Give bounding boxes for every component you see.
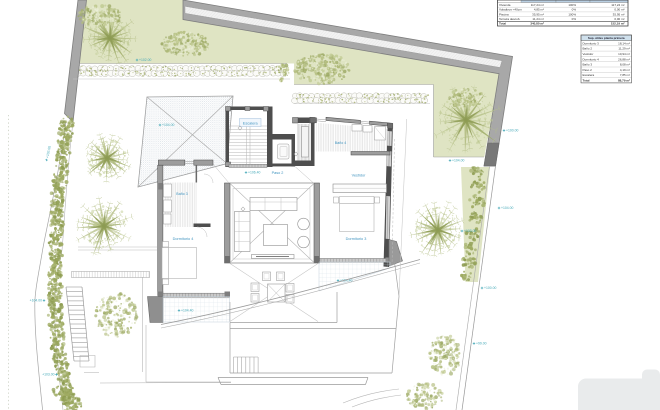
svg-text:Total: Total	[583, 79, 590, 83]
svg-text:Terraza descub.: Terraza descub.	[499, 17, 521, 21]
svg-text:Baño 2: Baño 2	[583, 47, 593, 51]
svg-text:+100.00: +100.00	[484, 286, 496, 290]
svg-text:Vestidor: Vestidor	[352, 173, 366, 177]
svg-text:Piscina: Piscina	[499, 12, 509, 16]
svg-text:88,79 m²: 88,79 m²	[618, 79, 630, 83]
svg-text:+106.40: +106.40	[248, 171, 260, 175]
svg-text:10,94 m²: 10,94 m²	[618, 52, 630, 56]
svg-text:+104.00: +104.00	[30, 299, 42, 303]
svg-text:+99.00: +99.00	[476, 342, 487, 346]
svg-text:11,29 m²: 11,29 m²	[618, 47, 630, 51]
svg-text:Dormitorio 3: Dormitorio 3	[583, 41, 600, 45]
svg-text:152,19 m²: 152,19 m²	[611, 22, 625, 26]
svg-text:Escalera: Escalera	[583, 73, 595, 77]
svg-text:Dormitorio 4: Dormitorio 4	[173, 237, 194, 241]
svg-text:+103.00: +103.00	[42, 373, 54, 377]
svg-text:Escalera: Escalera	[243, 121, 259, 125]
svg-text:4,85 m²: 4,85 m²	[534, 8, 544, 12]
svg-text:+103.00: +103.00	[464, 229, 476, 233]
svg-text:Dormitorio 4: Dormitorio 4	[583, 57, 600, 61]
svg-text:8,08 m²: 8,08 m²	[620, 63, 630, 67]
svg-text:+104.00: +104.00	[162, 123, 174, 127]
svg-text:+104.00: +104.00	[452, 159, 464, 163]
svg-text:Baño 4: Baño 4	[335, 141, 346, 145]
svg-text:Sup. útiles planta primera: Sup. útiles planta primera	[588, 36, 625, 40]
svg-text:0%: 0%	[572, 17, 577, 21]
svg-text:+104.40: +104.40	[181, 309, 193, 313]
svg-text:0%: 0%	[572, 8, 577, 12]
svg-text:100%: 100%	[568, 12, 576, 16]
svg-text:Baño 3: Baño 3	[176, 192, 187, 196]
svg-text:0,00 m²: 0,00 m²	[614, 8, 624, 12]
svg-text:Voladizos <40cm: Voladizos <40cm	[499, 8, 522, 12]
svg-text:Paso 2: Paso 2	[272, 171, 284, 175]
svg-text:18,14 m²: 18,14 m²	[618, 41, 630, 45]
svg-text:Total: Total	[499, 22, 506, 26]
svg-text:0,00 m²: 0,00 m²	[614, 17, 624, 21]
svg-text:11,24 m²: 11,24 m²	[532, 17, 544, 21]
svg-text:Dormitorio 3: Dormitorio 3	[346, 237, 367, 241]
svg-text:100%: 100%	[568, 3, 576, 7]
svg-text:+104.00: +104.00	[501, 206, 513, 210]
svg-text:Vestidor: Vestidor	[583, 52, 594, 56]
svg-text:+102.00: +102.00	[139, 58, 151, 62]
svg-text:+100.00: +100.00	[506, 129, 518, 133]
svg-text:26,88 m²: 26,88 m²	[618, 57, 630, 61]
svg-text:Vivienda: Vivienda	[499, 3, 511, 7]
svg-text:117,24 m²: 117,24 m²	[611, 3, 624, 7]
svg-text:4,19 m²: 4,19 m²	[620, 68, 630, 72]
svg-text:35,95 m²: 35,95 m²	[613, 12, 625, 16]
svg-text:Paso 2: Paso 2	[583, 68, 593, 72]
svg-text:7,85 m²: 7,85 m²	[620, 73, 630, 77]
svg-text:Baño 3: Baño 3	[583, 63, 593, 67]
svg-text:35,95 m²: 35,95 m²	[532, 12, 544, 16]
svg-text:117,24 m²: 117,24 m²	[531, 3, 544, 7]
svg-text:340,80 m²: 340,80 m²	[530, 22, 544, 26]
